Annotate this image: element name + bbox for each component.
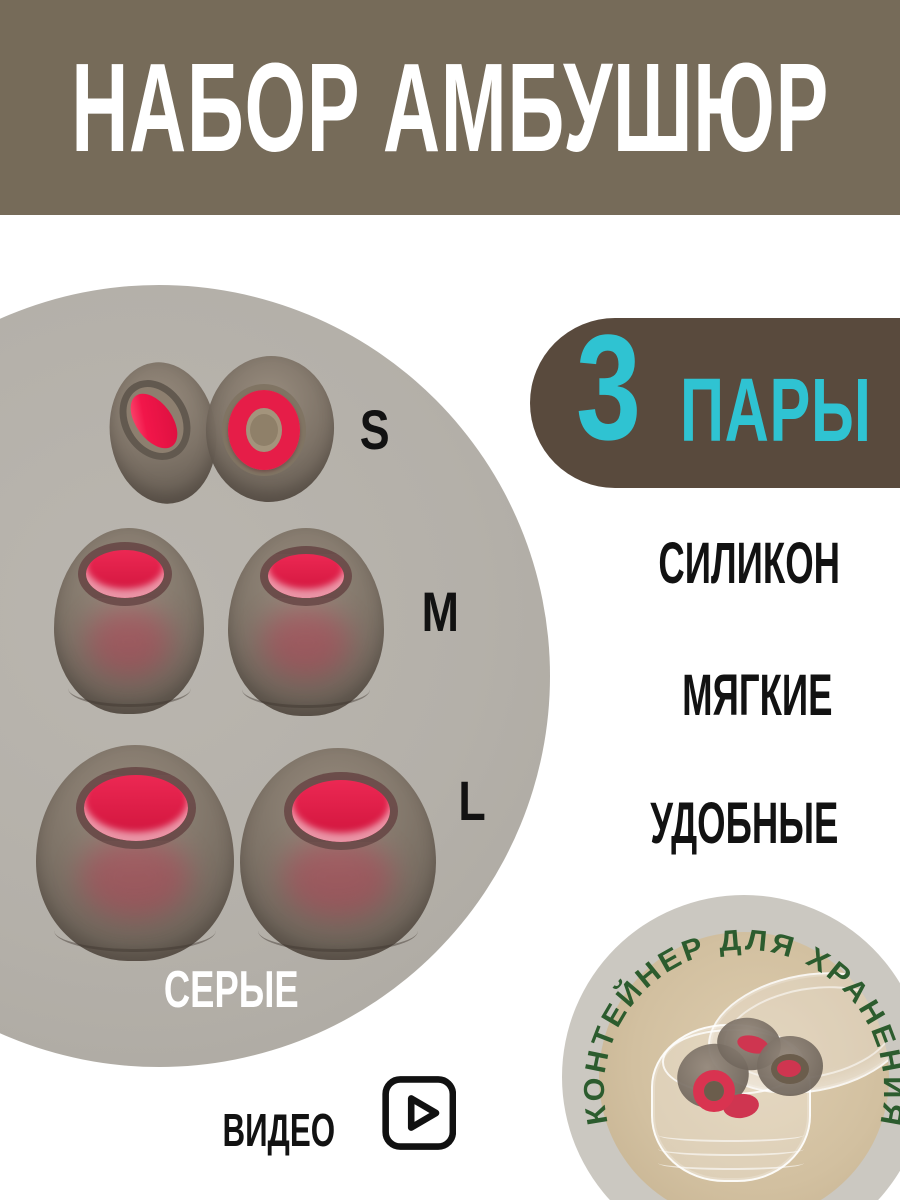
product-card: НАБОР АМБУШЮР S [0, 0, 900, 1200]
eartip-mouth [260, 546, 352, 606]
eartip-base-line [242, 671, 370, 709]
pairs-badge: 3 ПАРЫ [530, 318, 900, 488]
pairs-count: 3 [576, 312, 641, 462]
color-label-text: СЕРЫЕ [164, 960, 299, 1020]
page-title: НАБОР АМБУШЮР [71, 35, 829, 180]
eartip-base-line [258, 909, 419, 951]
banner: НАБОР АМБУШЮР [0, 0, 900, 215]
eartip-red-glow [87, 606, 171, 677]
size-label-text: M [421, 579, 458, 644]
storage-curved-label: КОНТЕЙНЕР ДЛЯ ХРАНЕНИЯ [562, 895, 900, 1200]
storage-container-circle: КОНТЕЙНЕР ДЛЯ ХРАНЕНИЯ [562, 895, 900, 1200]
eartip-s-right [206, 356, 334, 502]
eartip-m-left [54, 528, 204, 714]
eartip-mouth [284, 772, 398, 850]
size-label-l: L [432, 771, 512, 829]
eartip-base-line [68, 669, 191, 706]
size-label-m: M [400, 582, 480, 640]
feature-silicone: СИЛИКОН [599, 530, 899, 597]
feature-comfortable: УДОБНЫЕ [594, 790, 894, 857]
play-icon [382, 1062, 456, 1164]
svg-text:КОНТЕЙНЕР ДЛЯ ХРАНЕНИЯ: КОНТЕЙНЕР ДЛЯ ХРАНЕНИЯ [579, 924, 900, 1130]
eartip-hole [250, 414, 278, 446]
feature-soft: МЯГКИЕ [607, 662, 900, 729]
feature-text: УДОБНЫЕ [650, 790, 838, 857]
eartip-m-right [228, 528, 384, 716]
eartip-s-left [110, 362, 216, 504]
color-label: СЕРЫЕ [131, 965, 331, 1015]
size-label-text: S [360, 397, 390, 462]
eartip-red-glow [262, 607, 349, 678]
eartip-mouth [76, 767, 196, 849]
eartip-base-line [54, 909, 216, 952]
size-label-s: S [335, 400, 415, 458]
storage-label-text: КОНТЕЙНЕР ДЛЯ ХРАНЕНИЯ [579, 924, 900, 1130]
eartip-mouth [78, 542, 172, 606]
eartip-l-left [36, 745, 234, 961]
pairs-unit: ПАРЫ [680, 366, 872, 456]
size-label-text: L [458, 768, 485, 833]
eartip-l-right [240, 748, 436, 960]
video-label-wrap: ВИДЕО [196, 1103, 362, 1157]
feature-text: СИЛИКОН [658, 530, 840, 597]
video-block: ВИДЕО [196, 1058, 456, 1168]
feature-text: МЯГКИЕ [682, 662, 832, 729]
video-label: ВИДЕО [222, 1103, 335, 1157]
